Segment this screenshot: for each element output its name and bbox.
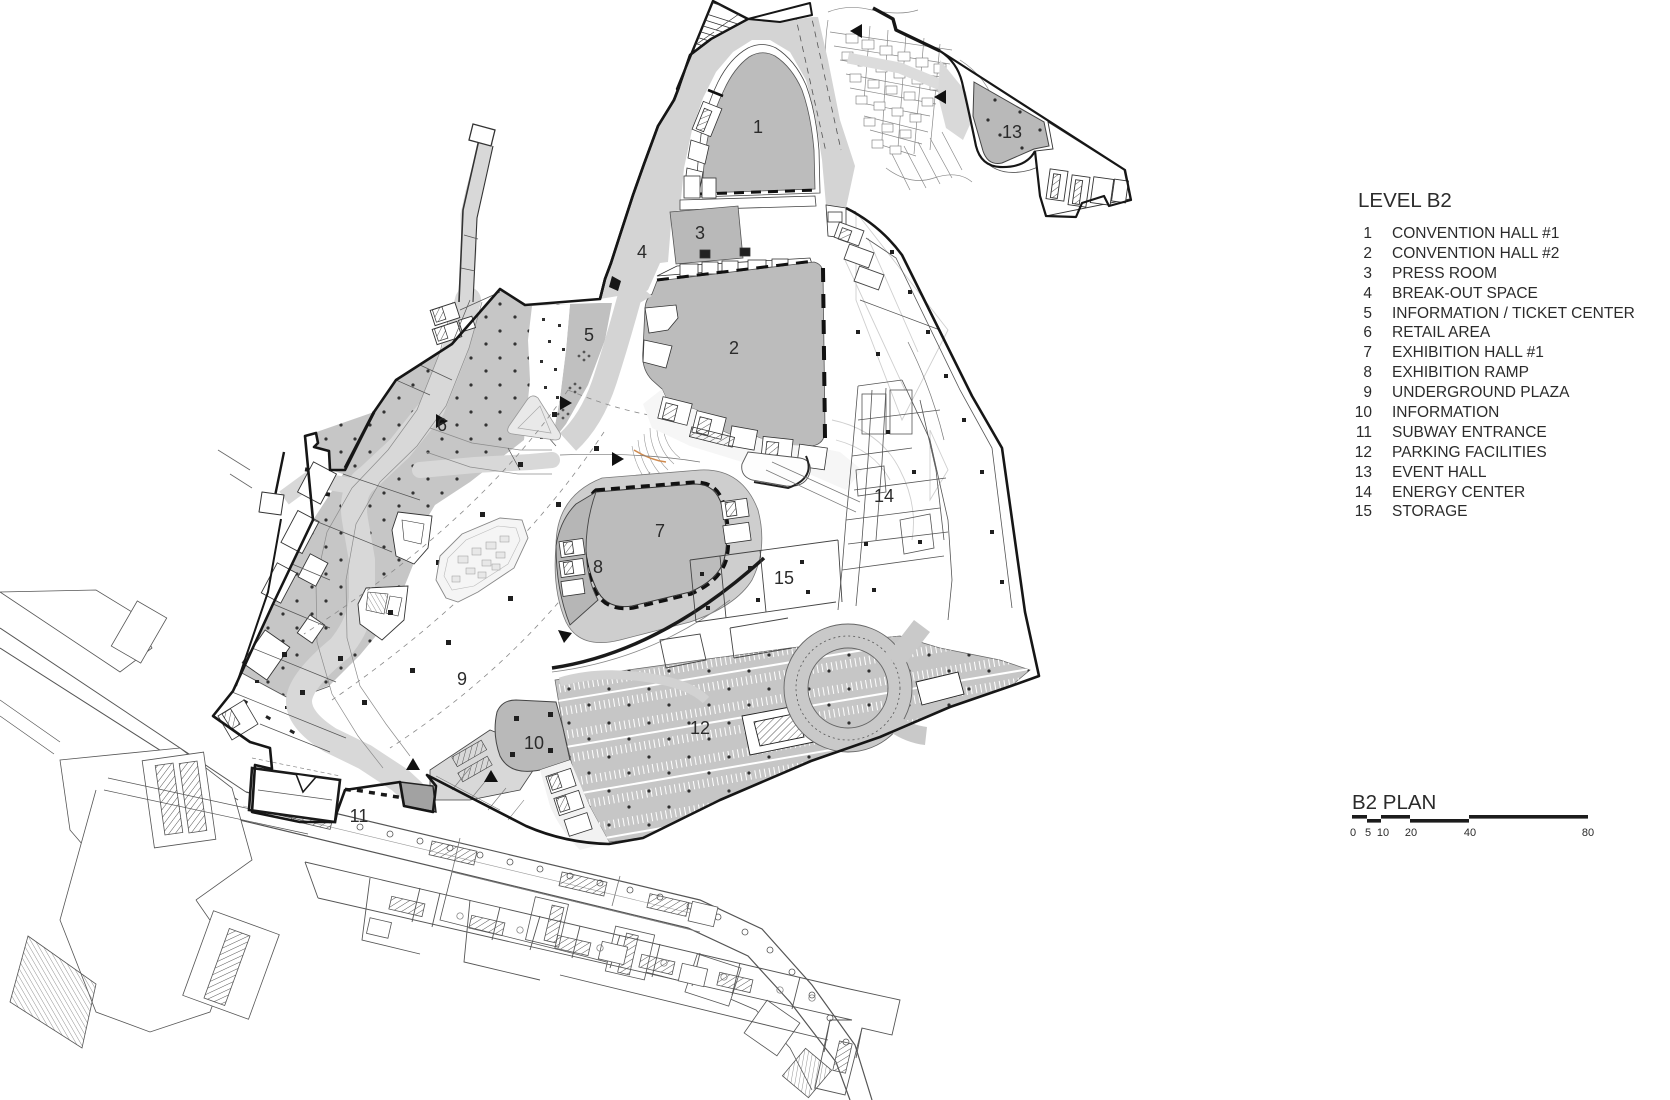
svg-text:INFORMATION: INFORMATION bbox=[1392, 404, 1499, 421]
svg-text:RETAIL AREA: RETAIL AREA bbox=[1392, 324, 1491, 341]
svg-text:5: 5 bbox=[1363, 305, 1372, 322]
svg-text:CONVENTION HALL #1: CONVENTION HALL #1 bbox=[1392, 225, 1559, 242]
svg-text:8: 8 bbox=[1363, 364, 1372, 381]
svg-text:12: 12 bbox=[690, 718, 710, 738]
svg-text:10: 10 bbox=[1377, 827, 1389, 839]
svg-text:4: 4 bbox=[637, 242, 647, 262]
svg-text:B2 PLAN: B2 PLAN bbox=[1352, 791, 1436, 814]
svg-text:6: 6 bbox=[437, 415, 447, 435]
svg-text:STORAGE: STORAGE bbox=[1392, 503, 1468, 520]
svg-text:14: 14 bbox=[1355, 484, 1373, 501]
svg-text:EXHIBITION HALL #1: EXHIBITION HALL #1 bbox=[1392, 344, 1544, 361]
svg-text:7: 7 bbox=[1363, 344, 1372, 361]
svg-text:BREAK-OUT SPACE: BREAK-OUT SPACE bbox=[1392, 285, 1538, 302]
svg-text:15: 15 bbox=[774, 568, 794, 588]
svg-text:11: 11 bbox=[1356, 424, 1372, 441]
svg-text:2: 2 bbox=[729, 338, 739, 358]
svg-text:UNDERGROUND PLAZA: UNDERGROUND PLAZA bbox=[1392, 384, 1570, 401]
svg-text:5: 5 bbox=[584, 325, 594, 345]
svg-text:EXHIBITION RAMP: EXHIBITION RAMP bbox=[1392, 364, 1529, 381]
svg-text:LEVEL B2: LEVEL B2 bbox=[1358, 189, 1452, 212]
svg-text:SUBWAY ENTRANCE: SUBWAY ENTRANCE bbox=[1392, 424, 1547, 441]
svg-text:15: 15 bbox=[1355, 503, 1372, 520]
svg-text:14: 14 bbox=[874, 486, 894, 506]
svg-text:1: 1 bbox=[1363, 225, 1372, 242]
svg-text:0: 0 bbox=[1350, 827, 1356, 839]
svg-text:6: 6 bbox=[1363, 324, 1372, 341]
svg-text:EVENT HALL: EVENT HALL bbox=[1392, 464, 1487, 481]
svg-text:9: 9 bbox=[457, 669, 467, 689]
svg-text:4: 4 bbox=[1363, 285, 1372, 302]
svg-text:INFORMATION / TICKET CENTER: INFORMATION / TICKET CENTER bbox=[1392, 305, 1635, 322]
svg-text:PRESS ROOM: PRESS ROOM bbox=[1392, 265, 1497, 282]
svg-text:80: 80 bbox=[1582, 827, 1594, 839]
svg-text:10: 10 bbox=[524, 733, 544, 753]
svg-text:13: 13 bbox=[1355, 464, 1372, 481]
svg-text:PARKING FACILITIES: PARKING FACILITIES bbox=[1392, 444, 1547, 461]
svg-text:8: 8 bbox=[593, 557, 603, 577]
svg-text:40: 40 bbox=[1464, 827, 1476, 839]
svg-text:5: 5 bbox=[1365, 827, 1371, 839]
svg-text:10: 10 bbox=[1355, 404, 1373, 421]
svg-text:11: 11 bbox=[350, 806, 369, 826]
svg-text:12: 12 bbox=[1355, 444, 1372, 461]
svg-text:20: 20 bbox=[1405, 827, 1417, 839]
svg-text:3: 3 bbox=[1363, 265, 1372, 282]
svg-text:7: 7 bbox=[655, 521, 665, 541]
svg-text:2: 2 bbox=[1363, 245, 1372, 262]
svg-text:3: 3 bbox=[695, 223, 705, 243]
svg-text:9: 9 bbox=[1363, 384, 1372, 401]
svg-text:ENERGY CENTER: ENERGY CENTER bbox=[1392, 484, 1525, 501]
svg-text:1: 1 bbox=[753, 117, 763, 137]
svg-text:CONVENTION HALL #2: CONVENTION HALL #2 bbox=[1392, 245, 1559, 262]
svg-text:13: 13 bbox=[1002, 122, 1022, 142]
